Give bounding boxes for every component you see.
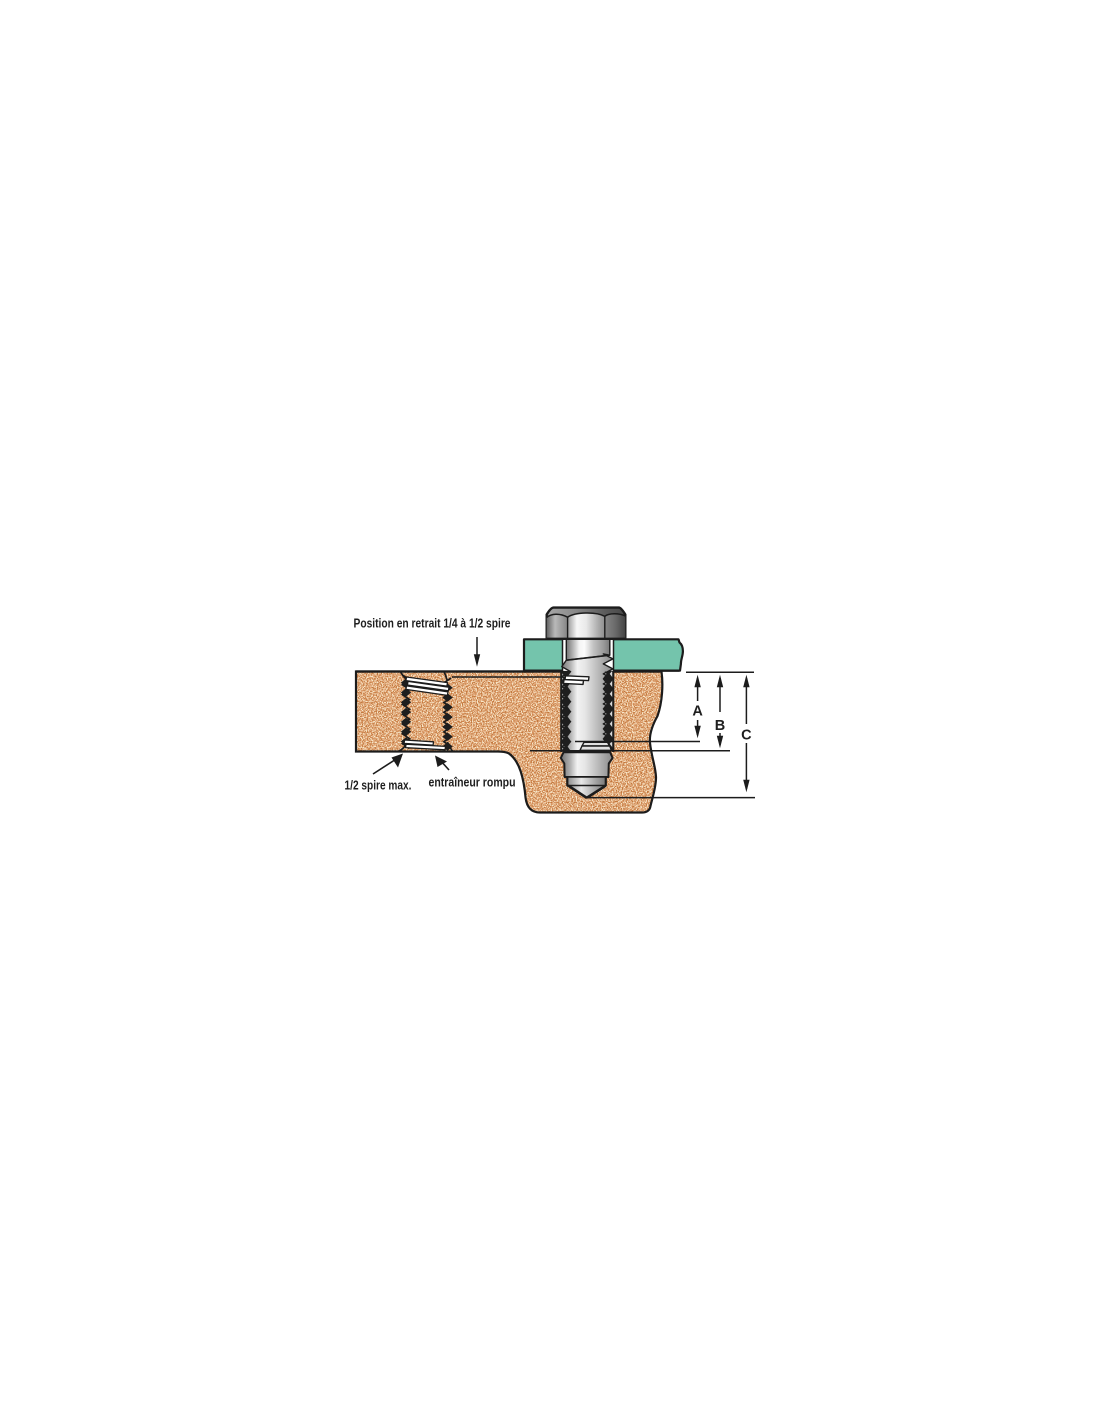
svg-text:A: A bbox=[692, 704, 703, 720]
svg-text:1/2 spire max.: 1/2 spire max. bbox=[345, 778, 412, 793]
svg-text:C: C bbox=[741, 727, 752, 743]
svg-text:Position en retrait 1/4 à 1/2: Position en retrait 1/4 à 1/2 spire bbox=[354, 615, 511, 630]
svg-text:B: B bbox=[715, 718, 725, 734]
svg-text:entraîneur rompu: entraîneur rompu bbox=[429, 775, 516, 790]
